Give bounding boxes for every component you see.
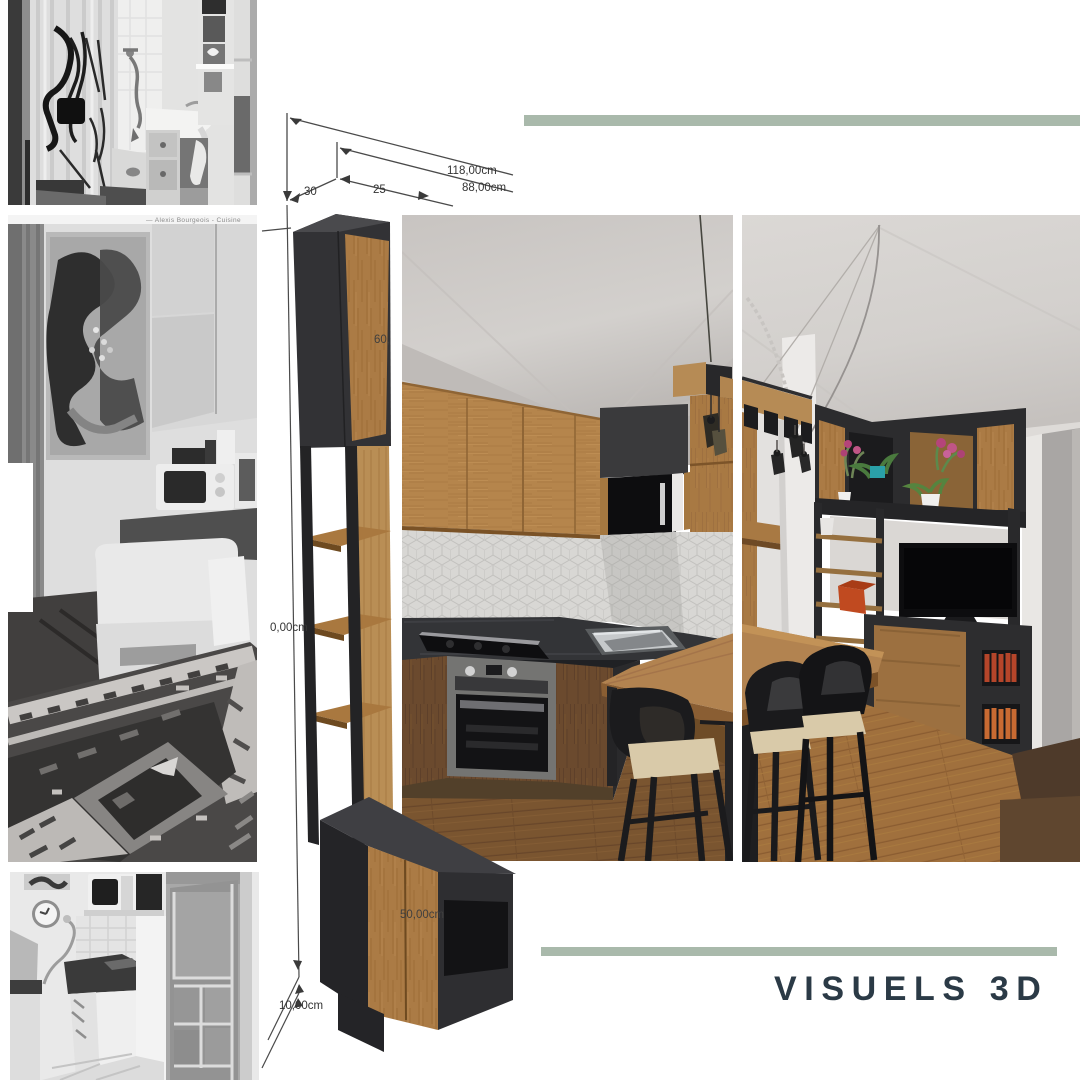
svg-text:118,00cm: 118,00cm: [447, 165, 497, 177]
svg-text:10,00cm: 10,00cm: [279, 1000, 323, 1012]
svg-text:— Alexis Bourgeois - Cuisine: — Alexis Bourgeois - Cuisine: [146, 217, 241, 224]
svg-text:0,00cm: 0,00cm: [270, 622, 308, 634]
svg-text:25: 25: [373, 184, 386, 196]
svg-text:VISUELS 3D: VISUELS 3D: [774, 970, 1048, 1008]
svg-text:60,: 60,: [374, 334, 390, 346]
svg-text:50,00cm: 50,00cm: [400, 909, 444, 921]
svg-text:88,00cm: 88,00cm: [462, 182, 506, 194]
svg-text:30: 30: [304, 186, 317, 198]
